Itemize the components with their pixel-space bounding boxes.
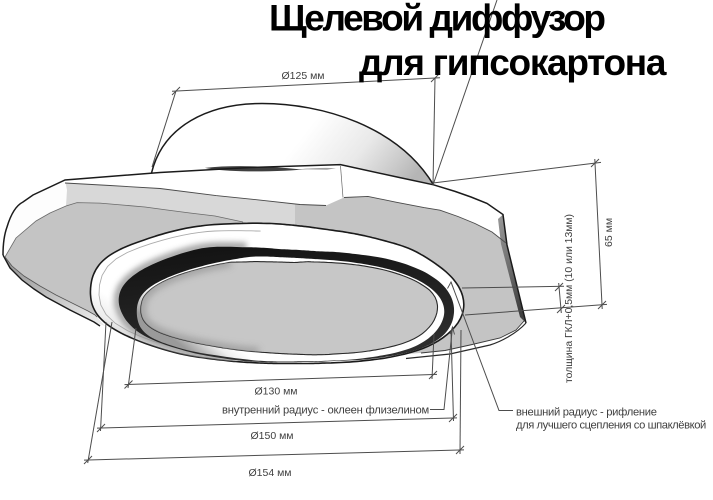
svg-text:Щелевой диффузор: Щелевой диффузор xyxy=(269,0,605,38)
svg-text:для гипсокартона: для гипсокартона xyxy=(359,42,667,83)
